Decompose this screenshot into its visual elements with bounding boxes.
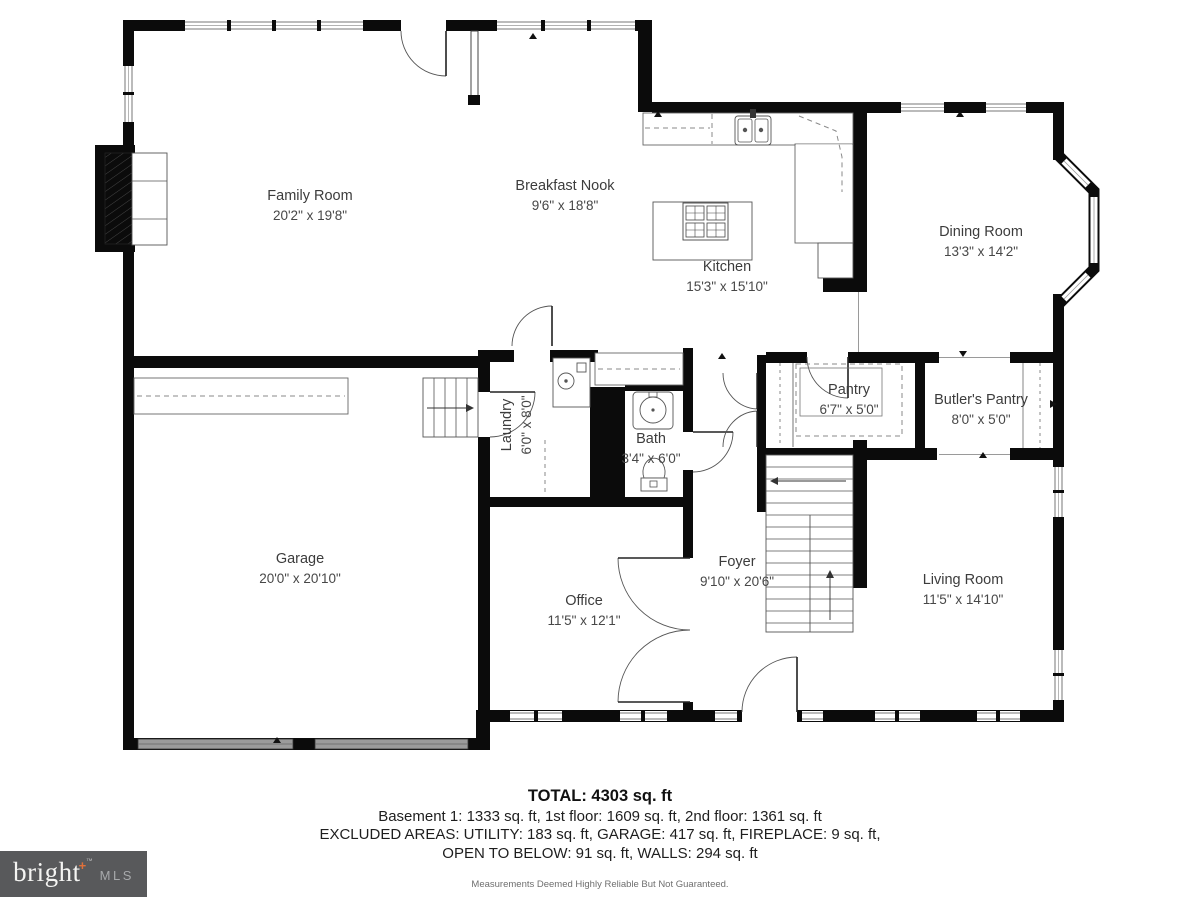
disclaimer-text: Measurements Deemed Highly Reliable But …	[0, 876, 1200, 895]
logo-plus-icon: +	[79, 858, 87, 873]
room-name: Family Room	[267, 187, 352, 206]
room-dims: 11'5" x 14'10"	[923, 590, 1004, 609]
area-summary: TOTAL: 4303 sq. ft Basement 1: 1333 sq. …	[0, 787, 1200, 895]
room-label-bath: Bath 3'4" x 6'0"	[621, 430, 680, 468]
door-swing-icon	[723, 411, 757, 447]
room-label-dining-room: Dining Room 13'3" x 14'2"	[939, 223, 1023, 261]
room-name: Pantry	[819, 381, 878, 400]
door-swing-icon	[742, 657, 797, 712]
room-name: Dining Room	[939, 223, 1023, 242]
room-label-garage: Garage 20'0" x 20'10"	[259, 550, 341, 588]
room-label-living-room: Living Room 11'5" x 14'10"	[923, 571, 1004, 609]
excluded-areas-text-1: EXCLUDED AREAS: UTILITY: 183 sq. ft, GAR…	[0, 826, 1200, 845]
room-name: Garage	[259, 550, 341, 569]
room-dims: 9'10" x 20'6"	[700, 572, 774, 591]
excluded-areas-text-2: OPEN TO BELOW: 91 sq. ft, WALLS: 294 sq.…	[0, 845, 1200, 864]
room-dims: 20'2" x 19'8"	[267, 206, 352, 225]
room-label-family-room: Family Room 20'2" x 19'8"	[267, 187, 352, 225]
bay-window-icon	[1058, 155, 1094, 305]
shelf-icon	[134, 378, 348, 414]
total-area-text: TOTAL: 4303 sq. ft	[0, 787, 1200, 806]
room-name: Kitchen	[686, 258, 768, 277]
logo-suffix-text: MLS	[100, 868, 134, 883]
room-dims: 9'6" x 18'8"	[515, 196, 614, 215]
room-dims: 8'0" x 5'0"	[934, 410, 1028, 429]
door-swing-icon	[723, 373, 757, 409]
room-label-office: Office 11'5" x 12'1"	[547, 592, 620, 630]
room-label-kitchen: Kitchen 15'3" x 15'10"	[686, 258, 768, 296]
partition-stub	[468, 31, 480, 105]
door-swing-icon	[512, 306, 552, 346]
room-label-breakfast-nook: Breakfast Nook 9'6" x 18'8"	[515, 177, 614, 215]
door-swing-icon	[401, 31, 446, 76]
room-dims: 11'5" x 12'1"	[547, 611, 620, 630]
door-swing-icon	[693, 432, 733, 472]
kitchen-island	[653, 202, 752, 260]
room-label-laundry: Laundry 6'0" x 8'0"	[498, 395, 536, 454]
room-label-butlers-pantry: Butler's Pantry 8'0" x 5'0"	[934, 391, 1028, 429]
bright-mls-logo: bright+™ MLS	[0, 851, 147, 897]
logo-trademark: ™	[86, 858, 93, 865]
cooktop-icon	[683, 203, 728, 240]
bath-sink-icon	[633, 392, 673, 429]
floorplan-drawing	[0, 0, 1200, 900]
room-name: Laundry	[498, 395, 517, 454]
floor-areas-text: Basement 1: 1333 sq. ft, 1st floor: 1609…	[0, 808, 1200, 827]
fireplace-icon	[95, 145, 167, 252]
room-name: Breakfast Nook	[515, 177, 614, 196]
room-dims: 13'3" x 14'2"	[939, 242, 1023, 261]
garage-stairs-icon	[423, 378, 478, 437]
room-dims: 6'0" x 8'0"	[517, 395, 536, 454]
door-swing-icon	[618, 558, 690, 630]
room-name: Foyer	[700, 553, 774, 572]
refrigerator-icon	[818, 243, 853, 278]
room-dims: 20'0" x 20'10"	[259, 569, 341, 588]
stairs-icon	[766, 455, 853, 632]
opening-lines	[859, 292, 1011, 455]
room-label-foyer: Foyer 9'10" x 20'6"	[700, 553, 774, 591]
room-dims: 15'3" x 15'10"	[686, 277, 768, 296]
logo-brand-text: bright	[13, 857, 81, 888]
door-swing-icon	[618, 630, 690, 702]
room-label-pantry: Pantry 6'7" x 5'0"	[819, 381, 878, 419]
room-dims: 3'4" x 6'0"	[621, 449, 680, 468]
basement-stairs-icon	[780, 363, 793, 447]
room-dims: 6'7" x 5'0"	[819, 400, 878, 419]
washer-icon	[553, 358, 590, 407]
room-name: Living Room	[923, 571, 1004, 590]
room-name: Butler's Pantry	[934, 391, 1028, 410]
room-name: Bath	[621, 430, 680, 449]
room-name: Office	[547, 592, 620, 611]
floorplan-page: Family Room 20'2" x 19'8" Breakfast Nook…	[0, 0, 1200, 900]
